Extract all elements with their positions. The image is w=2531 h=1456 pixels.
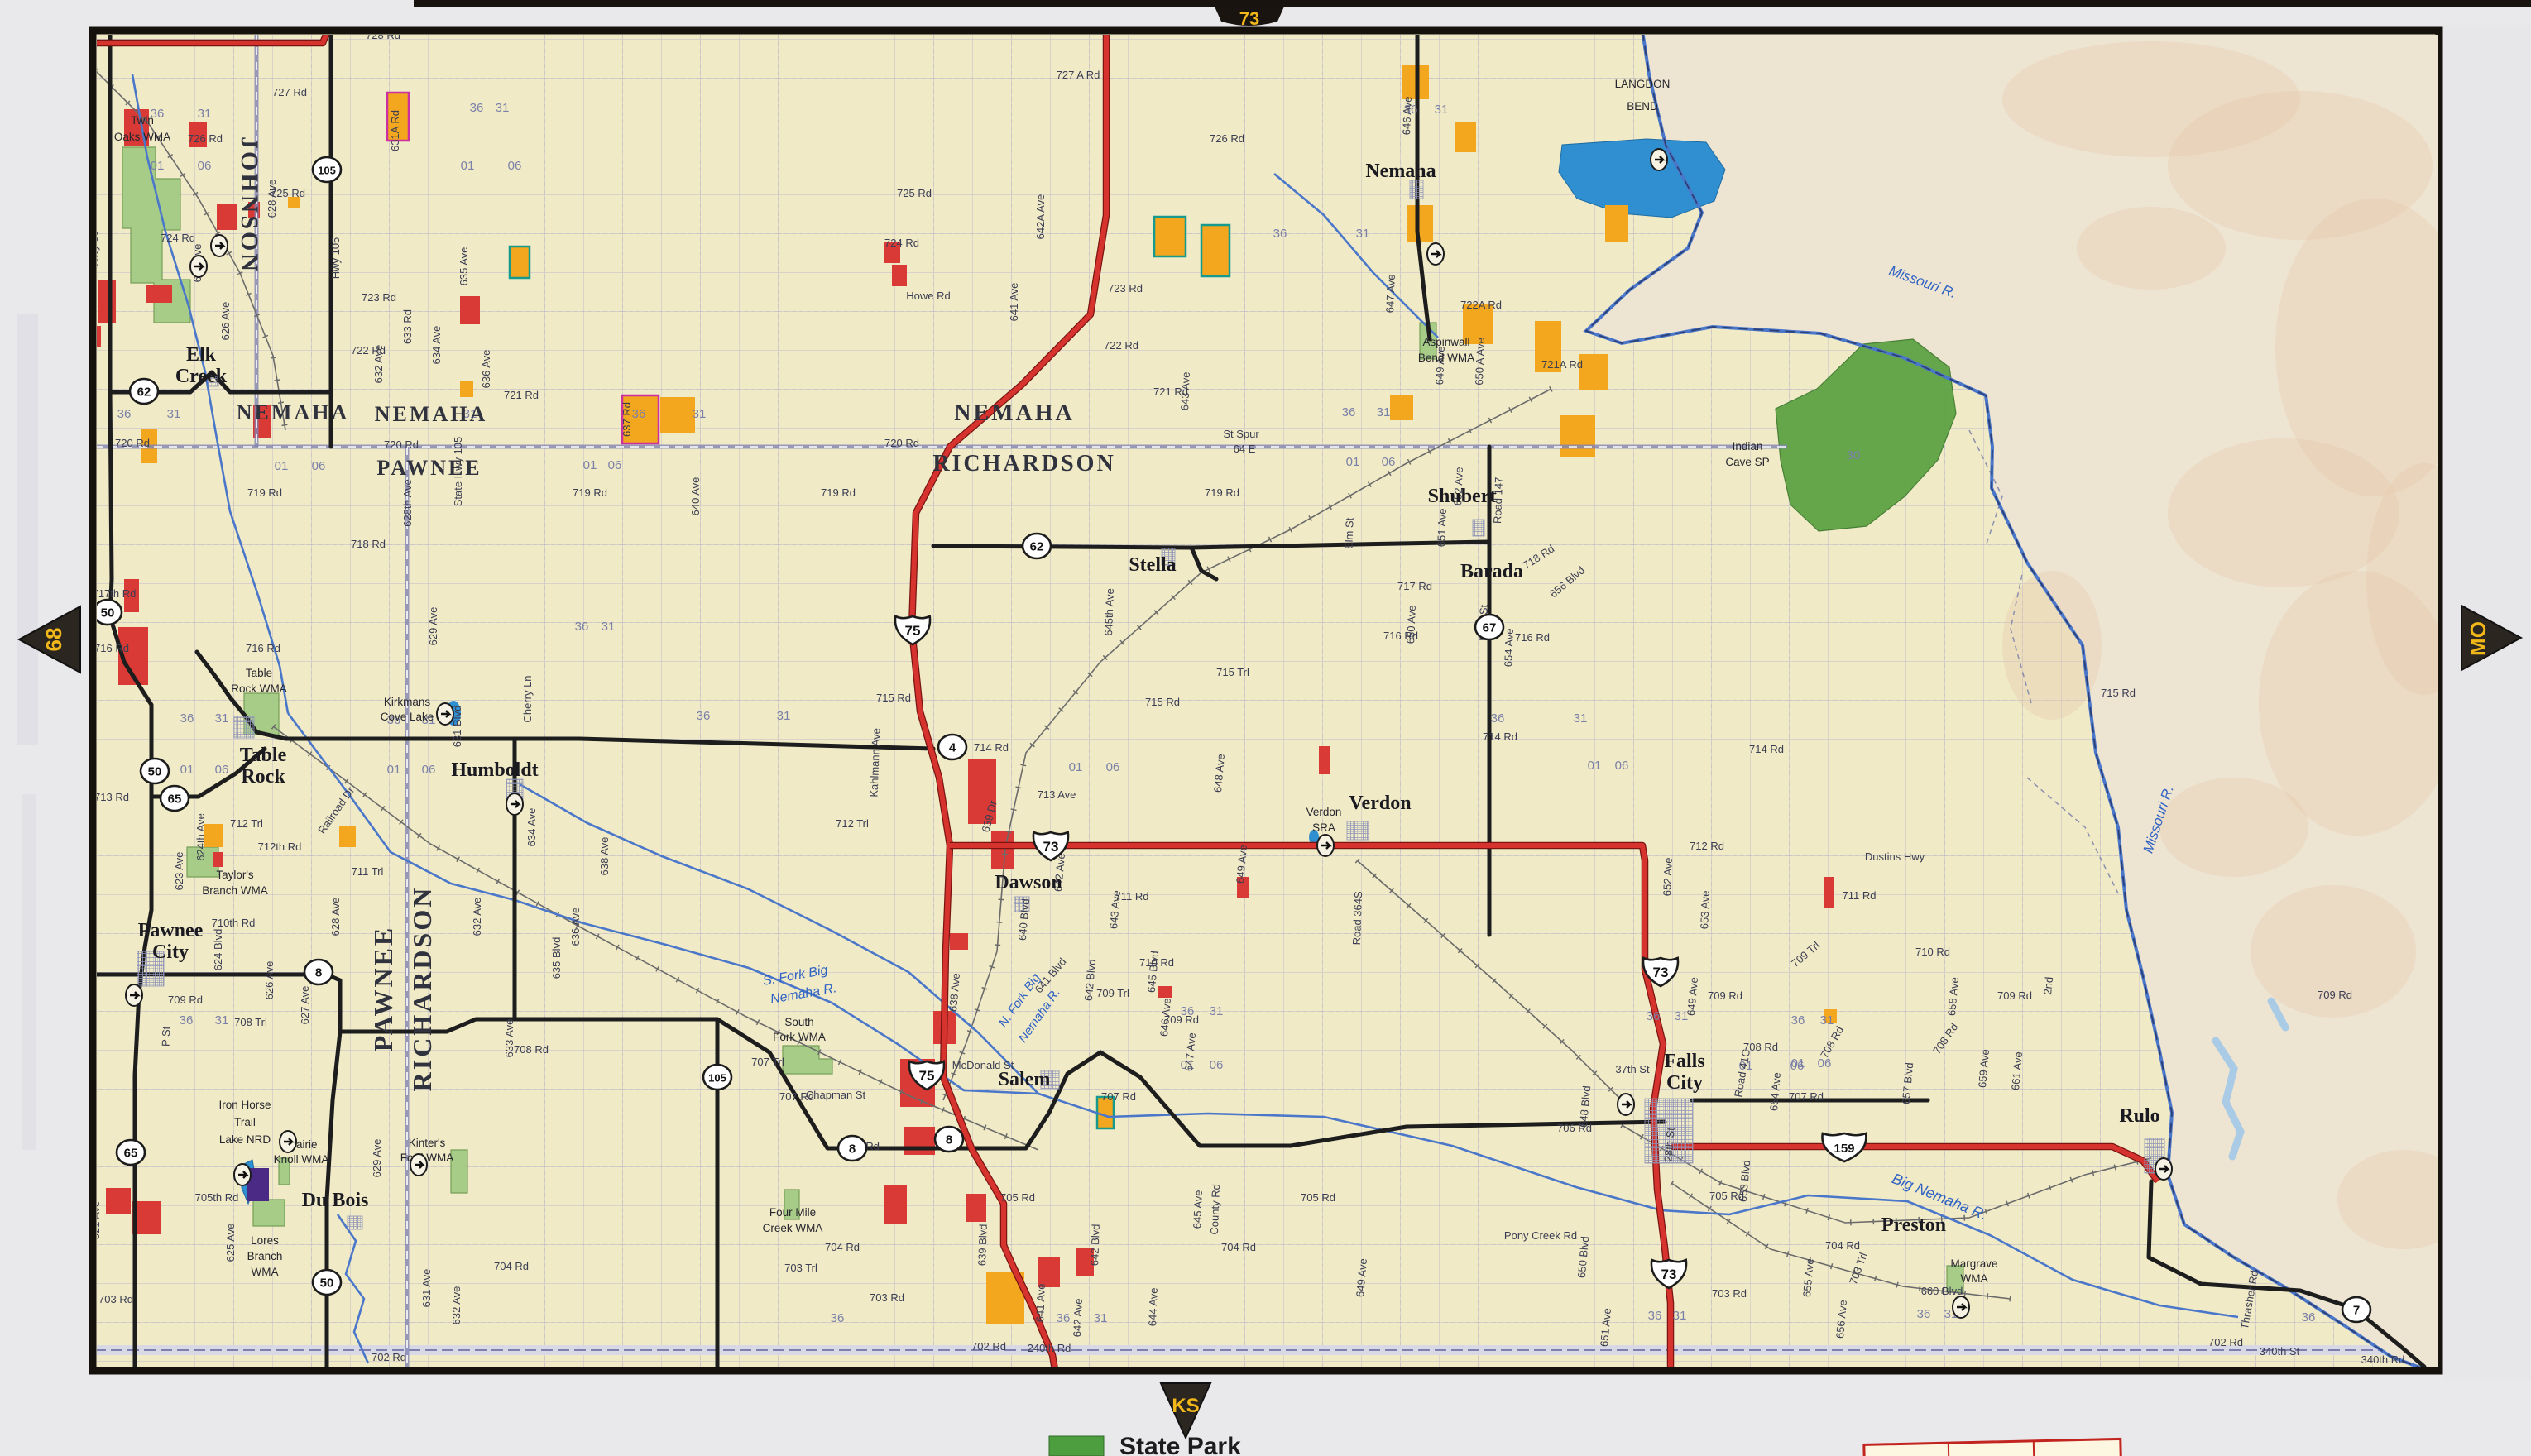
section-number: 06 [508,159,522,173]
section-number: 36 [1273,227,1287,241]
section-number: 01 [151,159,165,173]
state-highway-shield-number: 8 [849,1142,856,1157]
road-label: 636 Ave [480,350,492,389]
road-label: 725 Rd [897,187,932,199]
section-number: 36 [470,101,484,115]
section-number: 36 [831,1311,845,1325]
county-label: RICHARDSON [932,451,1115,477]
road-label: 633 Rd [401,309,414,344]
road-label: 240th Rd [1028,1342,1071,1354]
section-number: 01 [180,763,194,777]
road-label: P St [160,1026,173,1046]
section-number: 31 [198,107,212,121]
section-number: 06 [1210,1058,1224,1072]
road-label: 727 A Rd [1057,69,1100,81]
road-label: 709 Rd [1997,989,2032,1002]
road-label: Cherry Ln [521,675,534,722]
area-label: Margrave [1950,1257,1997,1270]
road-label: 628 Ave [266,180,278,218]
state-highway-shield-number: 4 [949,741,956,755]
relief-shading [2002,571,2102,720]
section-number: 31 [496,101,510,115]
area-label: Lores [251,1234,279,1247]
state-highway-shield-number: 50 [101,606,115,620]
road-label: 704 Rd [1825,1239,1860,1252]
red-land-parcel [892,265,907,286]
road-label: 724 Rd [161,232,195,244]
red-land-parcel [106,1188,131,1214]
road-label: 709 Rd [1708,989,1742,1002]
road-label: 37th St [1615,1063,1650,1075]
section-number: 36 [1057,1311,1071,1325]
area-label: Iron Horse [218,1099,271,1111]
road-label: 624 Blvd [212,929,224,971]
road-label: 722 Rd [1104,339,1138,352]
road-label: 718 Rd [351,538,386,550]
road-label: 631A Rd [389,110,401,151]
section-number: 06 [198,159,212,173]
section-number: 31 [215,711,229,726]
section-number: 06 [215,763,229,777]
red-land-parcel [950,933,968,950]
town-label: Nemaha [1365,160,1436,182]
road-label: 629 Ave [371,1139,383,1178]
road-label: 632 Ave [471,898,483,936]
wma-area [253,1200,285,1226]
county-road-atlas-map: 3631010636310106363136313101063631010601… [0,0,2531,1456]
page-top-dark-edge [414,0,2531,7]
road-label: 727 Rd [272,86,307,98]
road-label: 633 Ave [503,1019,515,1058]
road-label: 716 Rd [1515,631,1550,644]
road-label: 632 Ave [372,345,385,384]
map-content: 3631010636310106363136313101063631010601… [65,29,2482,1372]
us-highway-shield-number: 159 [1834,1142,1854,1156]
area-label: Cave SP [1725,456,1769,468]
road-label: 638 Ave [598,837,611,876]
road-label: 340th Rd [2361,1353,2405,1366]
town-label: Stella [1129,554,1176,576]
road-label: 716 Rd [246,642,280,654]
road-label: 650 A Ave [1473,338,1487,386]
road-label: 634 Ave [525,808,538,847]
road-label: 639 Blvd [975,1224,990,1266]
red-land-parcel [966,1194,986,1222]
section-number: 31 [1820,1013,1834,1027]
road-label: 651 Ave [1435,508,1449,547]
section-number: 06 [1615,759,1629,773]
road-label: 707 Rd [1789,1090,1824,1103]
town-label: Shubert [1428,486,1497,507]
section-number: 31 [215,1013,229,1027]
orange-land-parcel [1560,415,1595,457]
town-label: Rulo [2119,1105,2159,1127]
red-land-parcel [991,831,1014,869]
section-number: 36 [1491,711,1505,726]
state-highway-shield-number: 62 [1030,540,1044,554]
road-label: 702 Rd [372,1351,406,1363]
section-number: 01 [583,458,597,472]
orange-land-parcel [1455,122,1476,152]
page-bleed-through [22,794,36,1150]
road-label: 705 Rd [1000,1191,1035,1204]
section-number: 06 [312,459,326,473]
road-label: 631 Ave [420,1269,433,1308]
road-label: 660 Blvd [1921,1285,1963,1297]
road-label: 709 Trl [1096,987,1129,999]
road-label: Chapman St [806,1089,866,1101]
area-label: BEND [1627,100,1658,113]
town-label: City [1666,1072,1703,1094]
county-label: PAWNEE [368,926,398,1052]
red-land-parcel [884,1185,907,1224]
red-land-parcel [1038,1257,1060,1287]
town-label: City [152,941,189,963]
town-label: Humboldt [451,759,538,781]
road-label: 724 Rd [884,237,919,249]
road-label: 719 Rd [573,486,607,499]
road-label: 720 Rd [384,438,419,451]
road-label: 640 Ave [689,477,702,516]
area-label: Kirkmans [384,696,431,708]
red-land-parcel [460,296,480,324]
road-label: 708 Rd [514,1043,549,1056]
area-label: Indian [1733,440,1763,453]
section-number: 31 [1673,1309,1687,1323]
section-number: 31 [693,407,707,421]
right-edge-marker-label: MO [2466,621,2490,656]
orange-land-parcel [1390,395,1413,420]
road-label: 723 Rd [362,291,396,304]
road-label: 723 Rd [1108,282,1143,295]
state-highway-shield-number: 105 [708,1072,726,1085]
road-label: Dustins Hwy [1865,850,1925,863]
road-label: 721 Rd [504,389,539,401]
section-number: 31 [1377,405,1391,419]
road-label: 715 Trl [1216,666,1249,678]
red-land-parcel [146,285,172,303]
area-label: Oaks WMA [114,131,170,143]
section-number: 31 [602,620,616,634]
section-number: 36 [2302,1310,2316,1324]
area-label: Rock WMA [231,682,287,695]
orange-land-parcel [339,826,356,847]
section-number: 06 [422,763,436,777]
road-label: Kahlmann Ave [868,728,883,797]
section-number: 31 [1356,227,1370,241]
road-label: 634 Ave [430,326,443,365]
road-label: 635 Ave [458,247,470,286]
legend-state-park-label: State Park [1119,1433,1241,1456]
road-label: 629 Ave [427,607,439,646]
state-highway-shield-number: 65 [168,793,182,807]
state-highway-shield-number: 62 [137,386,151,400]
road-label: 704 Rd [494,1260,529,1272]
town-label: Table [240,745,287,766]
area-label: Kinter's [409,1137,446,1149]
road-label: 2nd [2041,976,2055,995]
atlas-page: { "page": { "edge_markers": { "top": "73… [0,0,2531,1456]
area-label: WMA [1961,1272,1988,1285]
road-label: 710th Rd [212,917,256,929]
road-label: 705th Rd [195,1191,239,1204]
relief-shading [2159,778,2308,877]
section-number: 06 [1106,760,1120,774]
state-highway-shield-number: 8 [946,1133,952,1147]
town-street-grid [348,1216,362,1229]
town-label: Salem [999,1069,1051,1090]
red-land-parcel [1824,877,1834,908]
orange-land-parcel [510,247,530,278]
road-label: 654 Ave [1502,628,1516,667]
road-label: 703 Rd [98,1293,133,1305]
page-bottom-margin [0,1380,2531,1456]
section-number: 36 [697,709,711,723]
road-label: 653 Ave [1698,890,1712,929]
section-number: 01 [387,763,401,777]
road-label: Howe Rd [906,290,950,302]
legend-state-park-swatch [1049,1436,1104,1456]
area-label: Bend WMA [1418,352,1474,364]
road-label: 715 Rd [2101,687,2136,699]
road-label: 712 Rd [1690,840,1724,852]
road-label: 702 Rd [971,1340,1006,1353]
road-label: 643 Ave [1178,371,1192,410]
us-highway-shield-number: 75 [919,1068,935,1084]
road-label: 715 Rd [1145,696,1180,708]
road-label: 720 Rd [884,437,919,449]
road-label: Pony Creek Rd [1504,1229,1577,1242]
state-highway-shield-number: 65 [124,1147,138,1161]
area-label: Four Mile [769,1206,816,1219]
section-number: 01 [1346,455,1360,469]
top-edge-marker-label: 73 [1239,8,1259,29]
road-label: 626 Ave [219,302,232,341]
road-label: 713 Ave [1038,788,1076,801]
red-land-parcel [1158,986,1172,998]
road-label: 719 Rd [1205,486,1239,499]
county-label: NEMAHA [375,402,487,426]
road-label: County Rd [1208,1184,1222,1235]
road-label: 703 Rd [1712,1287,1747,1300]
road-label: 709 Rd [168,994,203,1006]
red-land-parcel [217,204,237,230]
town-street-grid [234,716,254,738]
road-label: 645 Ave [1191,1190,1205,1228]
orange-land-parcel [660,397,695,433]
county-label: NEMAHA [237,400,349,424]
road-label: 711 Rd [1843,889,1877,902]
section-number: 36 [1342,405,1356,419]
area-label: Lake NRD [219,1133,271,1146]
town-label: Falls [1664,1051,1704,1072]
road-label: St Spur [1223,428,1259,440]
road-label: 703 Trl [784,1262,817,1274]
section-number: 01 [461,159,475,173]
bottom-edge-marker-label: KS [1172,1395,1199,1417]
section-number: 01 [275,459,289,473]
area-label: Fork WMA [773,1031,826,1043]
road-label: 64 E [1234,443,1256,455]
area-label: South [784,1016,813,1028]
section-number: 31 [1435,103,1449,117]
section-number: 31 [1574,711,1588,726]
town-label: Creek [175,366,228,387]
road-label: 709 Rd [2318,989,2352,1001]
road-label: 712 Trl [836,817,869,830]
section-number: 31 [1210,1004,1224,1018]
road-label: 642 Blvd [1088,1224,1102,1266]
road-label: 641 Ave [1033,1283,1047,1322]
section-number: 31 [1094,1311,1108,1325]
red-land-parcel [98,280,116,323]
county-label: PAWNEE [376,456,482,480]
relief-shading [2168,438,2399,587]
area-label: Taylor's [216,869,254,881]
road-label: 646 Ave [1400,96,1414,135]
area-label: SRA [1312,821,1335,834]
section-number: 36 [180,1013,194,1027]
road-label: 703 Rd [870,1291,904,1304]
orange-land-parcel [460,381,473,397]
road-label: Elm St [1342,517,1355,549]
town-street-grid [1410,180,1423,199]
road-label: 722A Rd [1460,299,1502,311]
road-label: 632 Ave [450,1286,463,1325]
state-highway-shield-number: 105 [318,165,336,177]
area-label: Twin [131,114,154,127]
road-label: 642A Ave [1034,194,1047,240]
town-label: Preston [1881,1214,1946,1236]
county-label: RICHARDSON [407,886,437,1092]
section-number: 01 [1791,1056,1805,1070]
road-label: 635 Blvd [550,937,563,979]
section-number: 36 [1791,1013,1805,1027]
section-number: 36 [1917,1307,1931,1321]
road-label: 624th Ave [194,813,207,861]
section-number: 36 [632,407,646,421]
area-label: Table [246,667,272,679]
section-number: 01 [1069,760,1083,774]
road-label: 627 Ave [299,986,311,1025]
area-label: Trail [234,1116,256,1128]
section-number: 01 [1588,759,1602,773]
road-label: 715 Rd [876,692,911,704]
state-highway-shield-number: 7 [2353,1304,2360,1318]
red-land-parcel [213,852,223,867]
orange-land-parcel [1579,354,1608,390]
orange-land-parcel [1201,225,1230,276]
section-number: 36 [1647,1009,1661,1023]
orange-land-parcel [1154,217,1186,256]
road-label: 714 Rd [974,741,1009,754]
area-label: Creek WMA [763,1222,823,1234]
road-label: 707 Trl [751,1056,784,1068]
road-label: 650 Ave [1404,605,1418,644]
section-number: 36 [180,711,194,726]
road-label: 721A Rd [1541,358,1583,371]
state-highway-shield-number: 67 [1483,621,1497,635]
town-label: Dawson [995,872,1062,893]
town-label: Pawnee [138,920,204,941]
road-label: 714 Rd [1749,743,1784,755]
section-number: 06 [608,458,622,472]
road-label: 623 Ave [173,852,185,891]
us-highway-shield-number: 73 [1043,839,1059,855]
section-number: 30 [1847,448,1861,462]
road-label: 647 Ave [1383,274,1397,313]
page-right-margin [2442,25,2531,1456]
road-label: 636 Ave [569,908,582,946]
road-label: 710 Rd [1915,946,1950,958]
section-number: 31 [777,709,791,723]
section-number: 36 [575,620,589,634]
section-number: 36 [1648,1309,1662,1323]
state-highway-shield-number: 50 [148,765,162,779]
area-label: Aspinwall [1422,336,1469,348]
road-label: 642 Ave [1071,1298,1085,1337]
us-highway-shield-number: 73 [1661,1267,1677,1282]
road-label: 340th St [2260,1345,2300,1358]
red-land-parcel [904,1127,935,1155]
state-highway-shield-number: 50 [320,1276,334,1291]
section-number: 36 [117,407,132,421]
road-label: 716 Rd [94,642,129,654]
road-label: 628th Ave [401,479,414,527]
road-label: 626 Ave [263,961,276,1000]
road-label: 652 Ave [1661,857,1675,896]
road-label: 717 Rd [1397,580,1432,592]
left-edge-marker-label: 68 [41,628,66,652]
town-label: Verdon [1349,793,1411,814]
road-label: 711 Trl [352,865,384,878]
road-label: 644 Ave [1146,1287,1160,1326]
road-label: 717th Rd [93,587,137,600]
road-label: 726 Rd [188,132,223,145]
town-label: Du Bois [302,1190,369,1211]
county-label: NEMAHA [954,400,1075,426]
town-label: Barada [1460,561,1523,582]
road-label: 628 Ave [329,898,342,936]
town-street-grid [1347,821,1369,840]
road-label: 726 Rd [1210,132,1244,145]
page-bleed-through [17,314,38,745]
area-label: Knoll WMA [274,1153,329,1166]
area-label: Verdon [1306,806,1342,818]
relief-shading [2077,207,2226,290]
area-label: LANGDON [1615,78,1671,90]
orange-land-parcel [1605,205,1628,242]
road-label: 712th Rd [258,841,302,853]
road-label: 713 Rd [94,791,129,803]
state-highway-shield-number: 8 [315,966,322,980]
road-label: 704 Rd [1221,1241,1256,1253]
road-label: 705 Rd [1301,1191,1335,1204]
road-label: 702 Rd [2208,1336,2243,1348]
area-label: Branch [247,1250,283,1262]
area-label: Branch WMA [202,884,268,897]
road-label: 707 Rd [1101,1090,1136,1103]
road-label: Hwy 105 [329,237,342,280]
road-label: 641 Ave [1008,283,1020,322]
section-number: 06 [1382,455,1396,469]
road-label: 720 Rd [115,437,150,449]
road-label: Road 364S [1350,891,1364,946]
area-label: Cove Lake [381,711,434,723]
road-label: 704 Rd [825,1241,860,1253]
road-label: 712 Trl [230,817,263,830]
us-highway-shield-number: 73 [1653,965,1669,980]
